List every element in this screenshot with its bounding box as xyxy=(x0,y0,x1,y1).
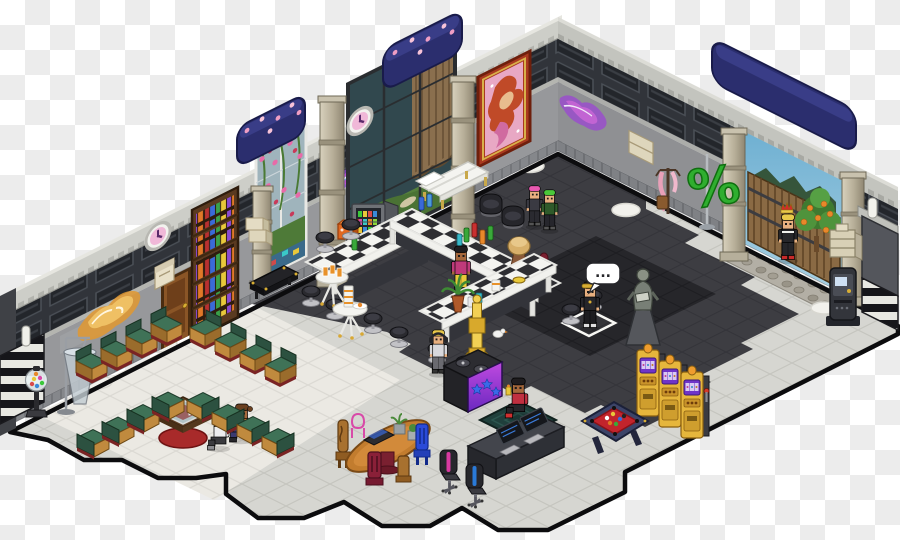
wall-light-right xyxy=(868,198,877,218)
crown-icon xyxy=(781,203,793,210)
counter-ashtray xyxy=(513,277,525,283)
percent-glyph: % xyxy=(684,155,744,222)
tub-chair-2[interactable] xyxy=(502,206,524,229)
wall-light-left xyxy=(22,326,30,346)
habbo-room-screenshot: { "meta": { "description": "Isometric pi… xyxy=(0,0,900,540)
atm-machine[interactable] xyxy=(826,268,860,326)
speech-bubble-text: ... xyxy=(595,265,611,281)
striped-corner-right xyxy=(858,206,898,330)
room-scene: % xyxy=(0,0,900,540)
storage-boxes[interactable] xyxy=(246,218,272,245)
wood-chair-right[interactable] xyxy=(396,456,411,482)
counter-cup xyxy=(492,280,500,291)
tub-chair-1[interactable] xyxy=(480,194,502,217)
maroon-chair[interactable] xyxy=(366,452,383,485)
